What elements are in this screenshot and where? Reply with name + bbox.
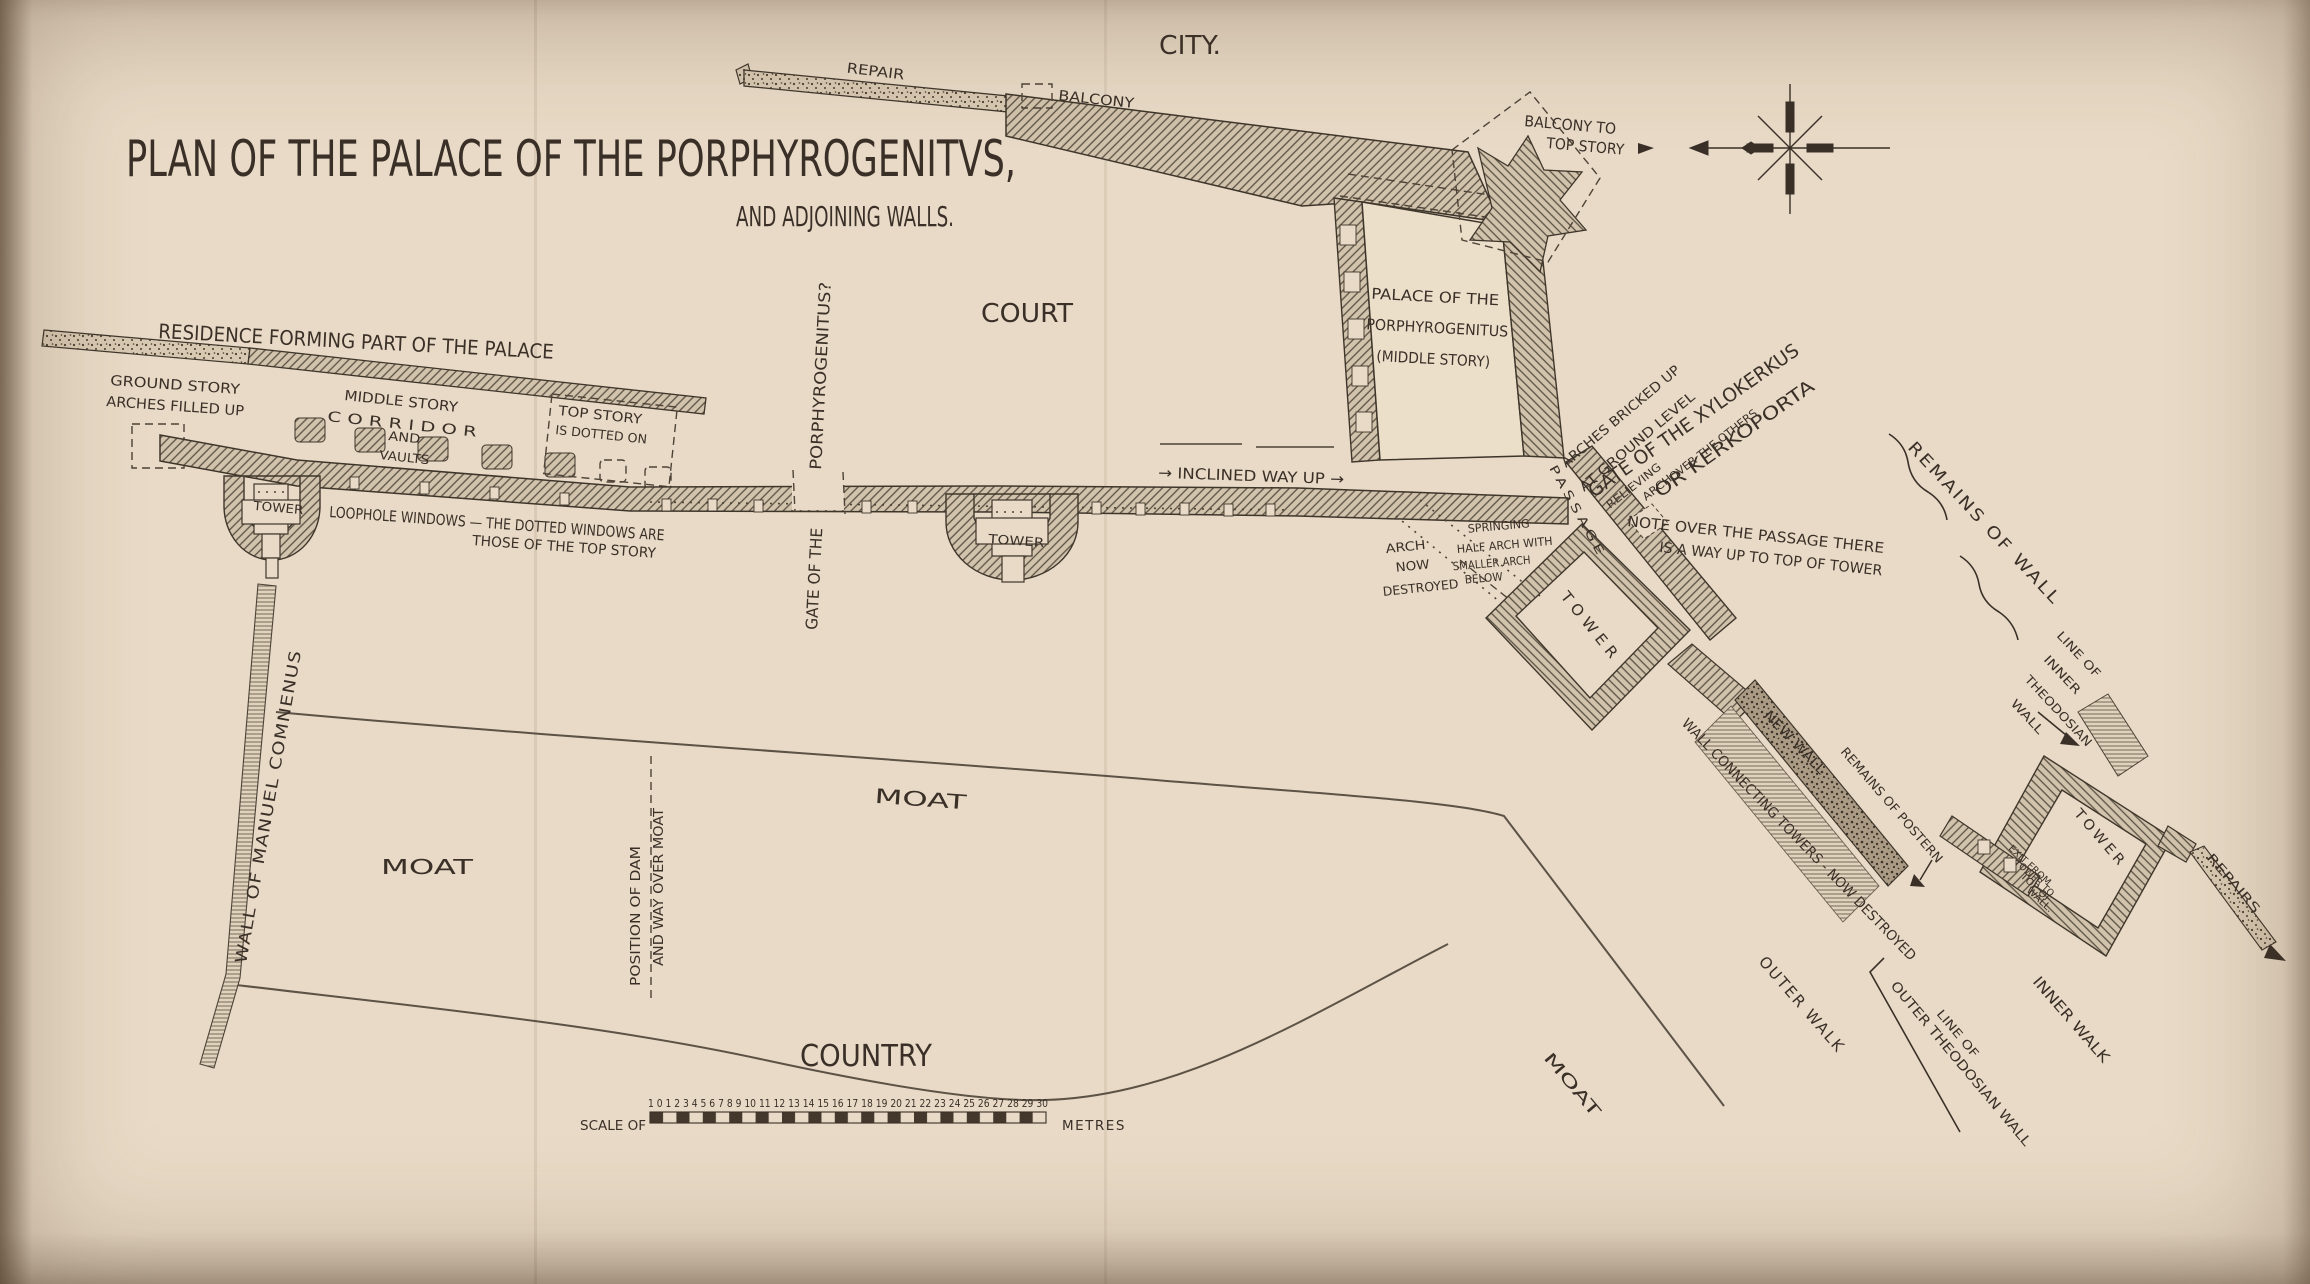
plan-drawing: PLAN OF THE PALACE OF THE PORPHYROGENITV…	[0, 0, 2310, 1284]
dam-label-1: POSITION OF DAM	[628, 846, 644, 986]
region-court: COURT	[981, 299, 1073, 329]
scale-label: SCALE OF	[580, 1118, 646, 1134]
page-title: PLAN OF THE PALACE OF THE PORPHYROGENITV…	[126, 130, 1016, 188]
plan-sheet: PLAN OF THE PALACE OF THE PORPHYROGENITV…	[0, 0, 2310, 1284]
page-subtitle: AND ADJOINING WALLS.	[736, 200, 954, 233]
fold-line-right	[1104, 0, 1107, 1284]
gate-of-porphyrogenitus-gap	[792, 470, 844, 510]
region-city: CITY.	[1159, 31, 1221, 61]
fold-line-left	[534, 0, 537, 1284]
dam-label-2: AND WAY OVER MOAT	[651, 807, 667, 966]
region-country: COUNTRY	[800, 1039, 933, 1074]
moat-left-label: MOAT	[381, 855, 474, 879]
scale-unit: METRES	[1062, 1118, 1126, 1134]
scale-bar	[650, 1112, 1046, 1123]
scale-numbers: 1 0 1 2 3 4 5 6 7 8 9 10 11 12 13 14 15 …	[648, 1098, 1048, 1110]
paper-background	[0, 0, 2310, 1284]
